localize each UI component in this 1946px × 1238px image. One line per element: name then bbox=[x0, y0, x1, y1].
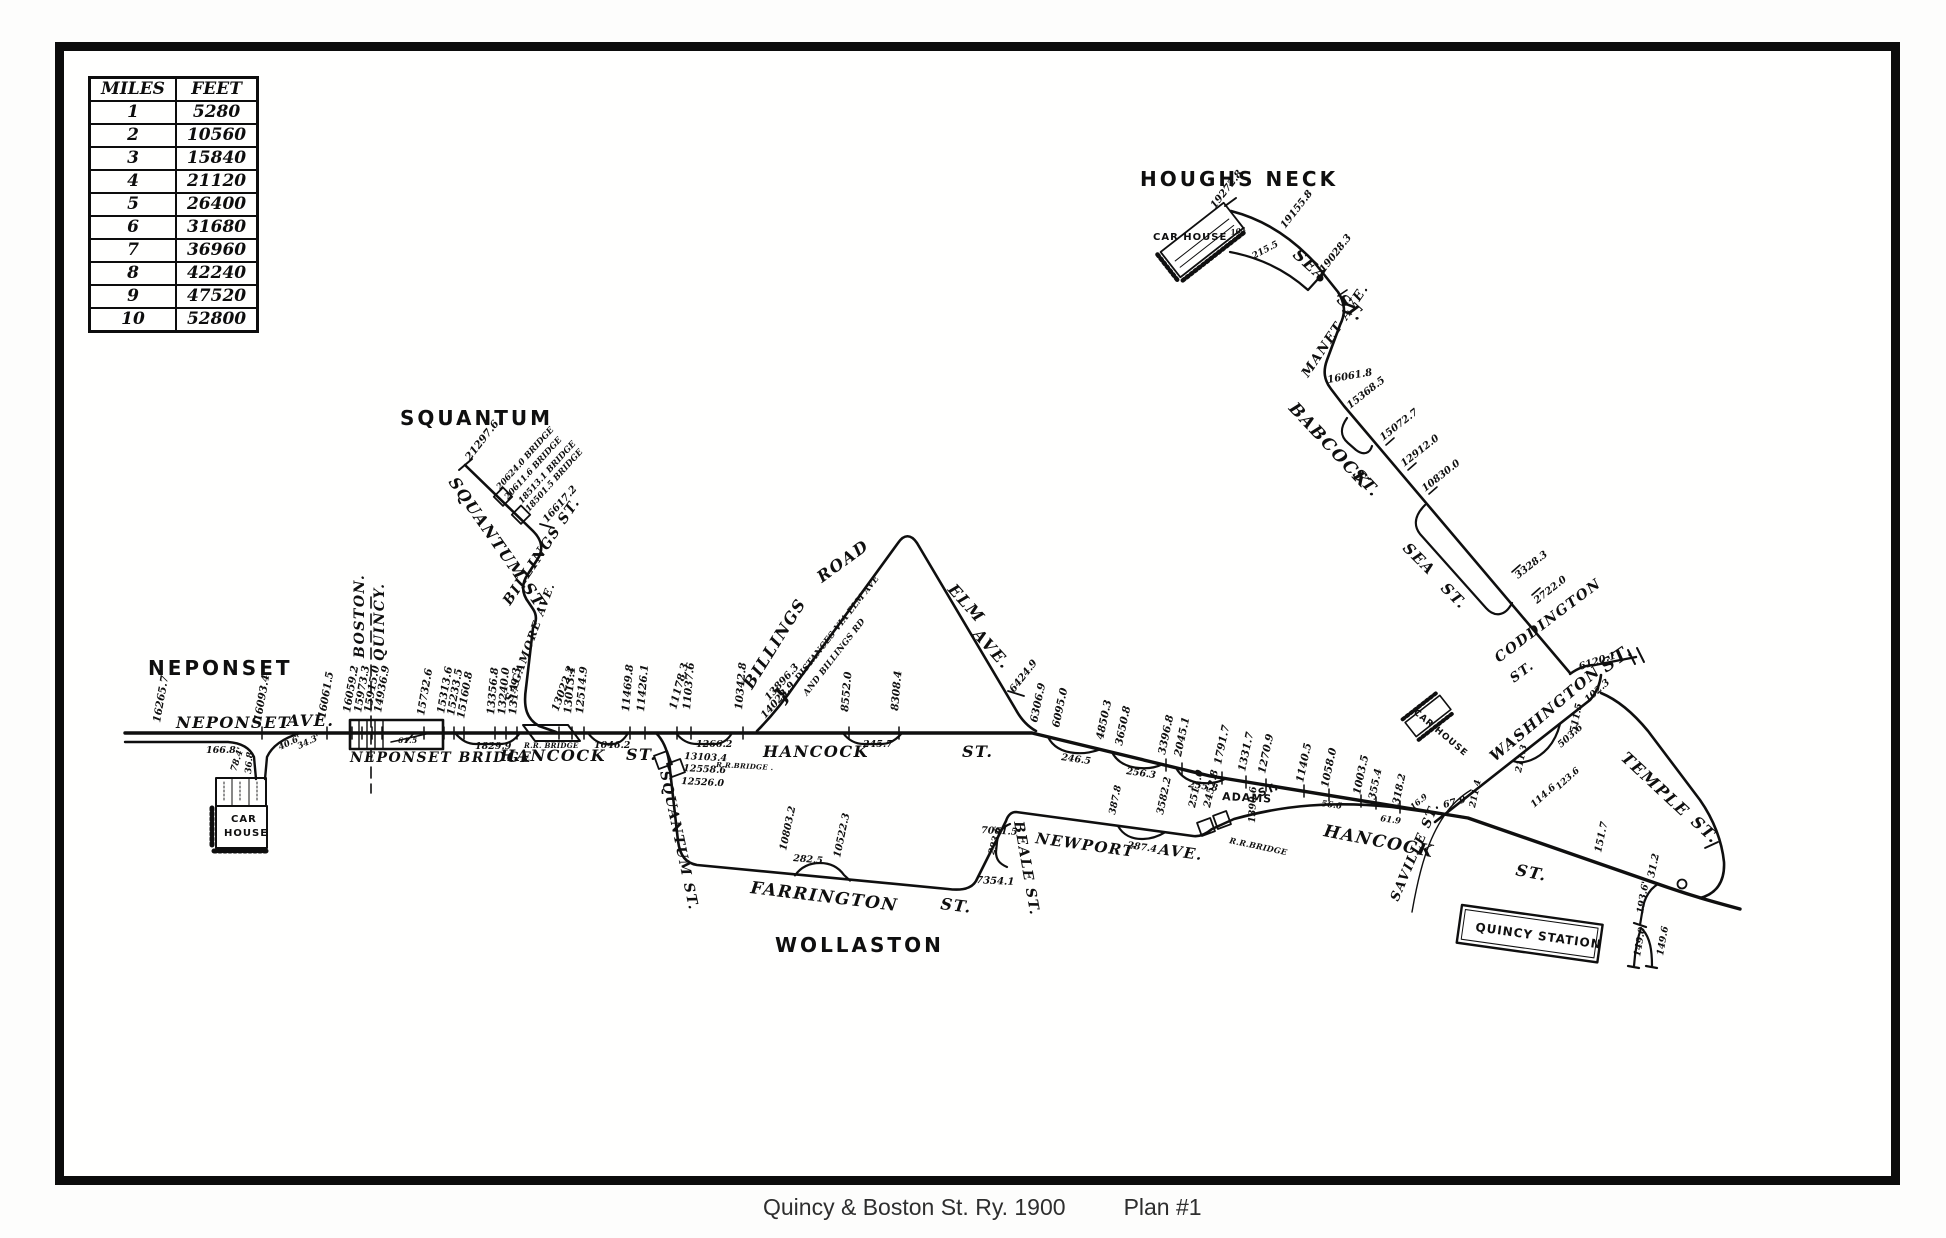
map-label: TEMPLE bbox=[1617, 748, 1693, 821]
map-label: CAR HOUSE bbox=[1153, 232, 1227, 243]
map-label: 15072.7 bbox=[1378, 407, 1420, 444]
map-label: ST. bbox=[962, 742, 993, 761]
map-label: 31.2 bbox=[1646, 852, 1662, 878]
quincy-junction-circle bbox=[1678, 880, 1687, 889]
map-label: 67.9 bbox=[1442, 794, 1468, 811]
map-label: 211.4 bbox=[1468, 779, 1484, 810]
map-label: 387.8 bbox=[1107, 784, 1124, 816]
map-label: 1390.6 bbox=[1247, 786, 1259, 823]
map-label: ST. bbox=[940, 894, 974, 917]
caption-title: Quincy & Boston St. Ry. 1900 bbox=[763, 1194, 1066, 1220]
map-label: 61.5 bbox=[398, 736, 417, 745]
map-label: SQUANTUM ST. bbox=[656, 770, 701, 913]
map-label: 1266.2 bbox=[696, 739, 733, 750]
map-label: 12912.0 bbox=[1399, 433, 1441, 470]
map-label: 1046.2 bbox=[594, 740, 631, 751]
track-map-drawing: NEPONSETSQUANTUMWOLLASTONHOUGHS NECKNEPO… bbox=[0, 0, 1946, 1238]
map-label: AVE. bbox=[968, 623, 1015, 672]
map-label: HOUSE bbox=[224, 828, 268, 839]
map-label: 19155.8 bbox=[1279, 188, 1316, 230]
map-label: DISTANCES VIA ELM AVE bbox=[793, 574, 882, 684]
map-label: 6095.0 bbox=[1050, 686, 1070, 728]
map-label: 2045.1 bbox=[1172, 716, 1192, 759]
map-label: 166.8 bbox=[206, 745, 236, 756]
houghs-end-tick bbox=[1225, 198, 1236, 206]
map-label: R.R.BRIDGE bbox=[1228, 835, 1289, 857]
map-label: 1140.5 bbox=[1294, 742, 1314, 784]
map-label: 114.6 bbox=[1529, 782, 1559, 810]
map-label: CAR bbox=[231, 814, 257, 825]
map-label: 3582.2 bbox=[1155, 776, 1174, 816]
map-label: NEPONSET bbox=[175, 713, 291, 732]
map-label: 7354.1 bbox=[976, 875, 1015, 888]
map-label: 10342.8 bbox=[733, 661, 749, 710]
map-label: 1058.0 bbox=[1319, 746, 1339, 788]
map-label: 12526.0 bbox=[681, 776, 725, 789]
map-label: HANCOCK bbox=[762, 742, 869, 761]
map-label: 215.5 bbox=[1250, 240, 1280, 263]
map-label: SEA bbox=[1399, 539, 1439, 579]
map-label: 34.3' bbox=[296, 733, 321, 752]
map-label: 355.4 bbox=[1367, 768, 1384, 801]
map-label: 36.8 bbox=[244, 751, 256, 774]
map-label: FARRINGTON bbox=[748, 878, 899, 916]
map-label: WOLLASTON bbox=[775, 933, 944, 957]
map-label: 318.2 bbox=[1391, 773, 1408, 806]
map-label: 10830.0 bbox=[1420, 458, 1462, 495]
map-label: NEWPORT bbox=[1033, 829, 1136, 861]
map-label: 19028.3 bbox=[1318, 232, 1355, 274]
map-label: 149.0 bbox=[1632, 926, 1648, 958]
map-label: 15732.6 bbox=[415, 667, 435, 717]
map-label: 193.6' bbox=[1635, 880, 1652, 914]
map-label: 56.6 bbox=[1321, 799, 1343, 812]
map-label: MANET AVE. bbox=[1298, 281, 1372, 381]
caption: Quincy & Boston St. Ry. 1900Plan #1 bbox=[763, 1194, 1202, 1221]
map-label: 246.5 bbox=[1060, 752, 1092, 767]
map-label: BOSTON. bbox=[352, 574, 368, 659]
map-label: ELM bbox=[943, 579, 988, 626]
map-label: 11469.8 bbox=[620, 663, 636, 712]
track-neponset-carhouse-leads bbox=[125, 733, 300, 779]
map-label: 3650.8 bbox=[1113, 704, 1133, 746]
map-label: 1829.9 bbox=[475, 741, 512, 752]
map-label: SQUANTUM bbox=[400, 406, 553, 430]
map-label: 8308.4 bbox=[889, 670, 904, 711]
map-label: 10522.3 bbox=[832, 812, 852, 859]
map-label: 4850.3 bbox=[1094, 699, 1114, 741]
map-label: 61.9 bbox=[1380, 814, 1402, 827]
track-houghs-neck-branch bbox=[1231, 211, 1570, 673]
map-labels-layer: NEPONSETSQUANTUMWOLLASTONHOUGHS NECKNEPO… bbox=[148, 167, 1723, 958]
map-label: 16061.8 bbox=[1327, 367, 1373, 386]
map-label: 1791.7 bbox=[1212, 723, 1232, 765]
map-label: QUINCY. bbox=[372, 583, 388, 661]
map-label: 16265.7 bbox=[151, 674, 171, 724]
map-label: ST. bbox=[626, 745, 657, 764]
map-label: 8552.0 bbox=[839, 670, 855, 712]
caption-plan-number: Plan #1 bbox=[1124, 1194, 1202, 1220]
map-label: R.R. BRIDGE bbox=[523, 741, 579, 750]
map-label: 6306.9 bbox=[1028, 681, 1048, 723]
map-label: 1270.9 bbox=[1256, 732, 1276, 774]
map-label: 149.6 bbox=[1655, 925, 1671, 957]
map-label: AVE. bbox=[1155, 840, 1204, 864]
map-label: 245.7 bbox=[862, 739, 893, 750]
map-label: 7061.5 bbox=[981, 825, 1018, 838]
map-label: 1331.7 bbox=[1236, 730, 1256, 772]
map-label: 10803.2 bbox=[778, 805, 798, 852]
map-label: 123.6 bbox=[1554, 765, 1582, 792]
map-label: ST. bbox=[1514, 860, 1549, 885]
map-label: 282.5 bbox=[792, 853, 824, 867]
map-label: ROAD bbox=[812, 536, 872, 587]
map-label: ST. bbox=[1507, 658, 1537, 686]
map-label: 11426.1 bbox=[635, 664, 651, 712]
map-label: 151.7 bbox=[1593, 821, 1610, 854]
